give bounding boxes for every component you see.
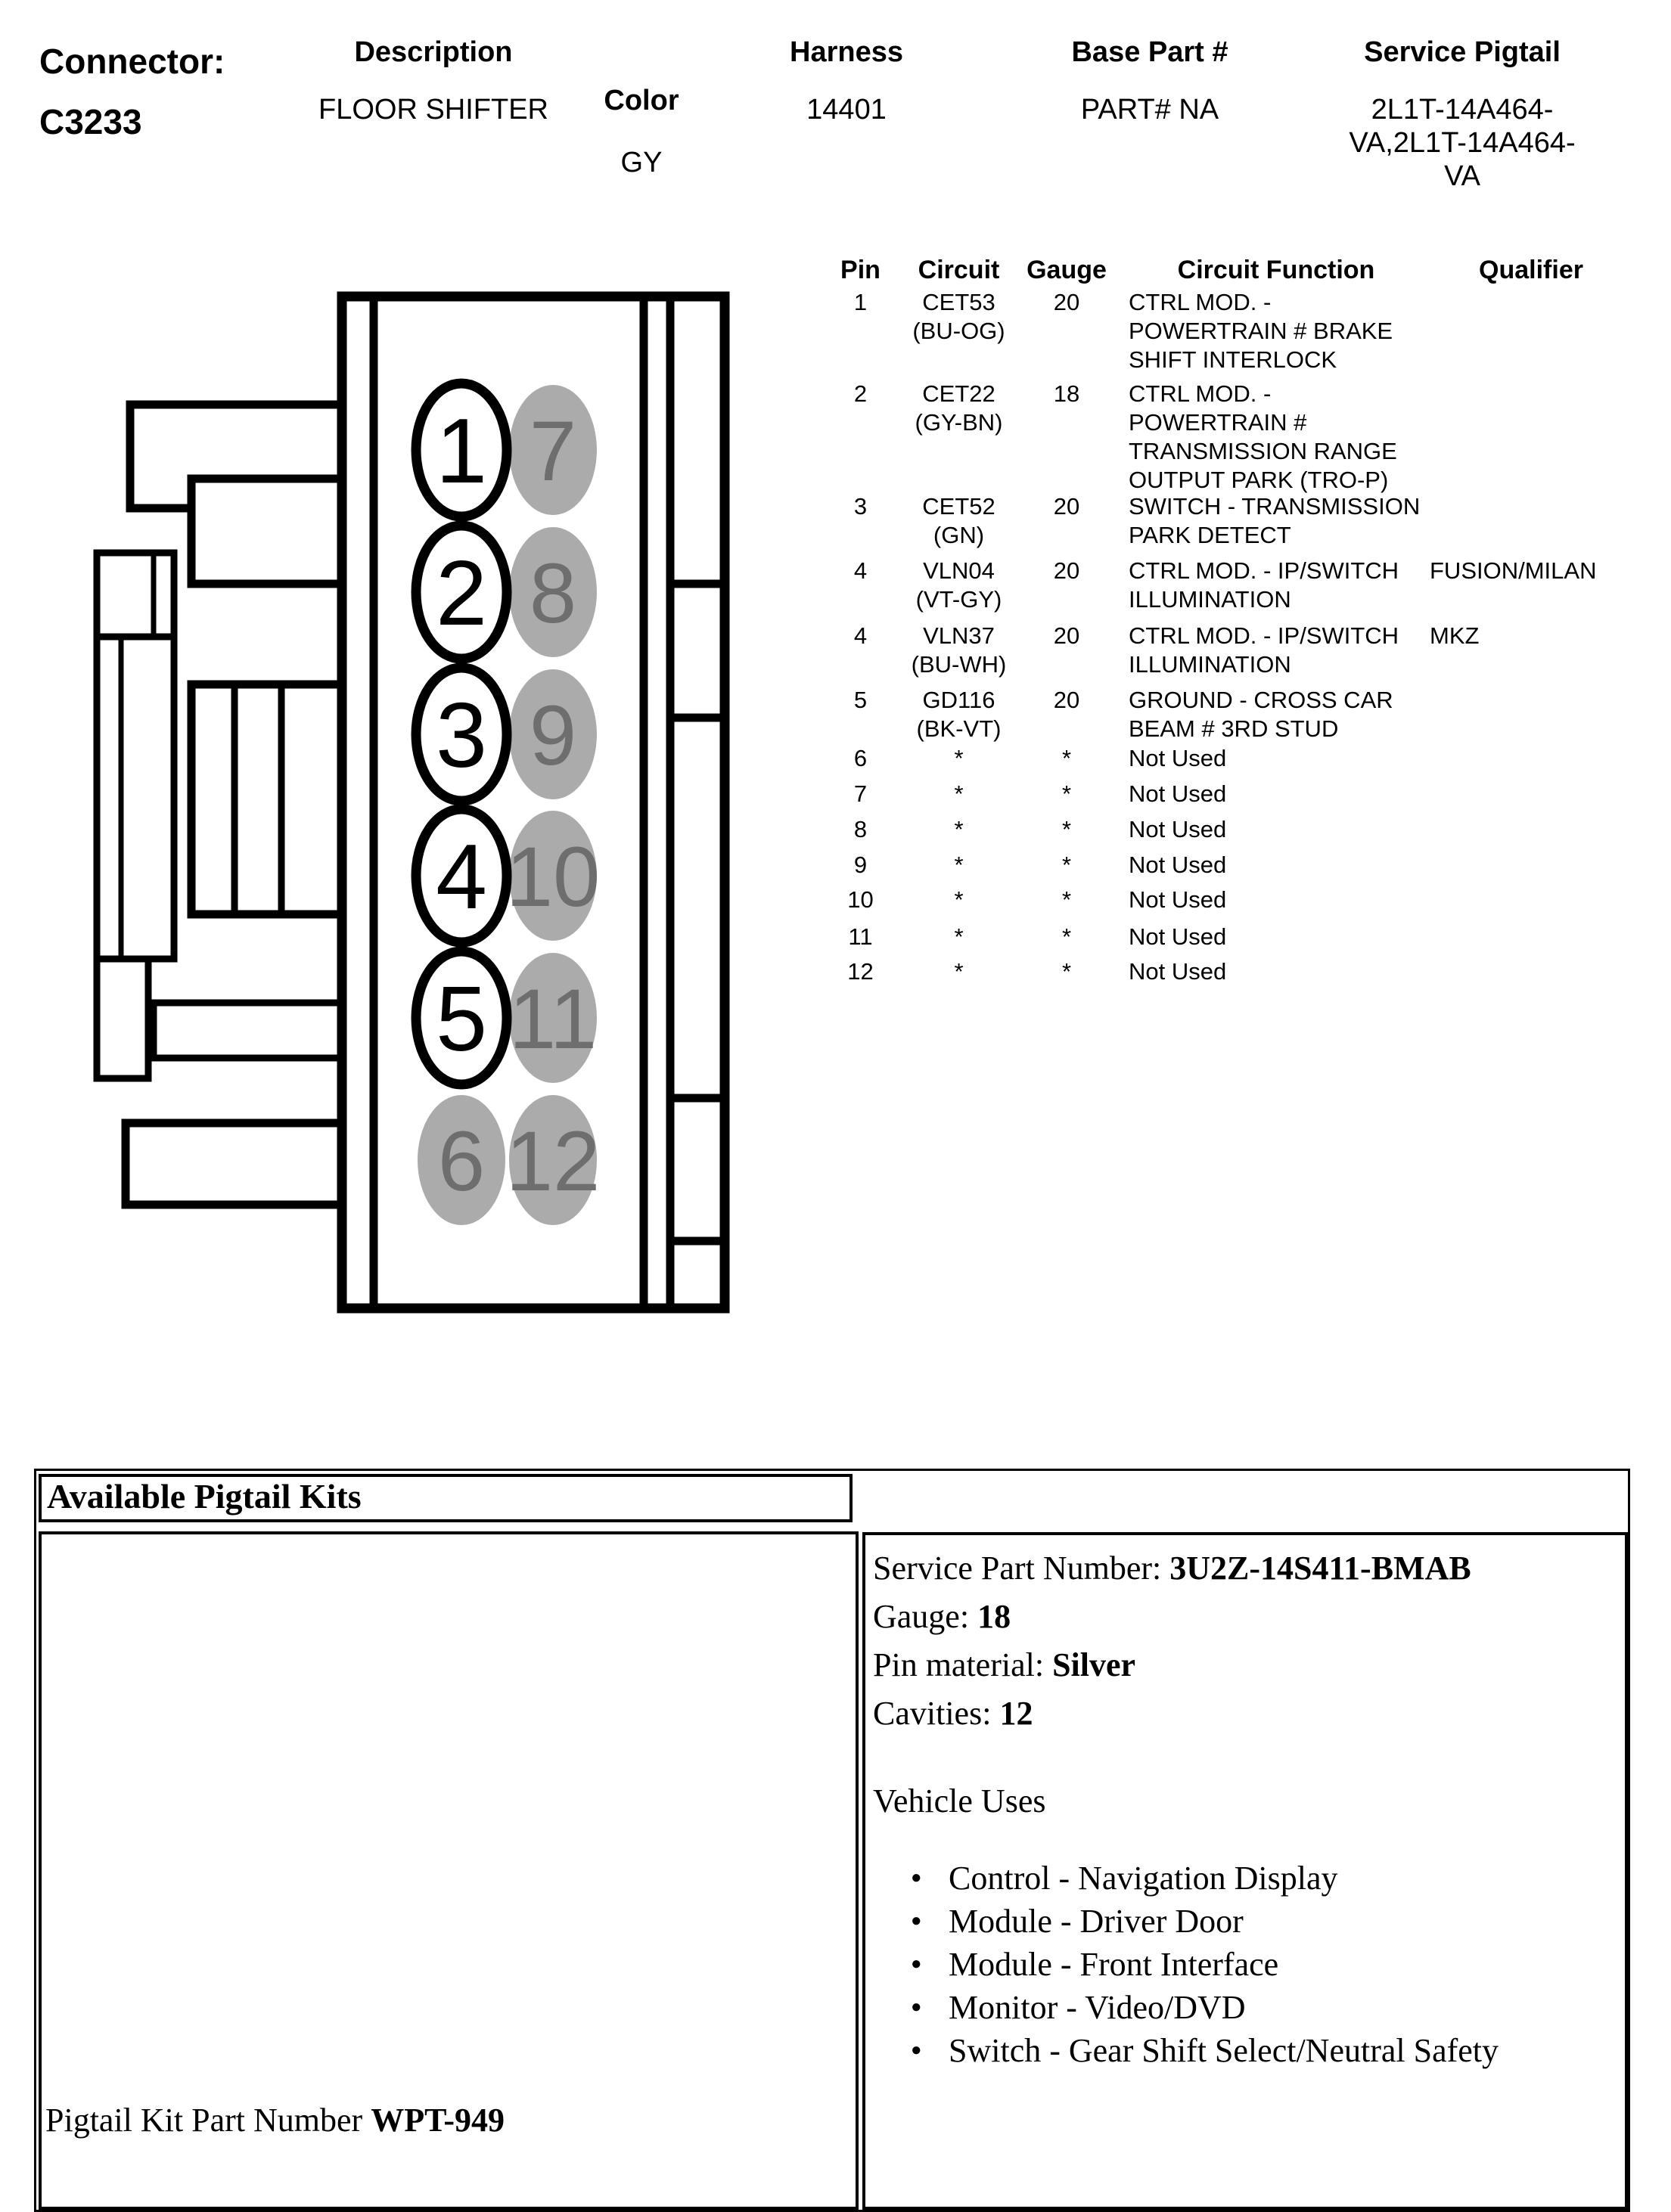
pin-cell: 11 (817, 923, 904, 951)
vehicle-use-item: ●Module - Front Interface (911, 1945, 1278, 1984)
circuit-cell: VLN04(VT-GY) (904, 557, 1014, 614)
connector-id: C3233 (39, 101, 142, 142)
vehicle-use-item: ●Module - Driver Door (911, 1902, 1244, 1941)
function-cell: Not Used (1129, 957, 1424, 986)
kit-value: WPT-949 (371, 2102, 505, 2139)
gauge-cell: 18 (1014, 380, 1120, 408)
circuit-cell: * (904, 923, 1014, 951)
gauge-cell: * (1014, 780, 1120, 808)
pin-4-number: 4 (436, 825, 487, 928)
function-cell: SWITCH - TRANSMISSIONPARK DETECT (1129, 492, 1424, 550)
latch-nub (97, 553, 174, 637)
pin-cell: 10 (817, 886, 904, 914)
latch-tab-h (126, 1123, 346, 1205)
service-pigtail-value-line2: VA,2L1T-14A464- (1349, 127, 1575, 160)
service-pigtail-value-line3: VA (1444, 160, 1480, 193)
circuit-cell: * (904, 851, 1014, 880)
harness-label: Harness (790, 36, 903, 69)
color-label: Color (604, 85, 679, 117)
gauge-value: 18 (977, 1598, 1011, 1635)
circuit-cell: * (904, 815, 1014, 844)
pin-11-number: 11 (509, 972, 597, 1066)
pin-material-line: Pin material: Silver (873, 1646, 1135, 1684)
circuit-cell: * (904, 780, 1014, 808)
pin-6-number: 6 (438, 1114, 485, 1208)
color-value: GY (621, 147, 663, 179)
latch-tab-f (154, 1003, 346, 1058)
gauge-cell: 20 (1014, 288, 1120, 317)
pin-5-number: 5 (436, 967, 487, 1070)
qualifier-cell: FUSION/MILAN (1430, 557, 1632, 585)
function-cell: Not Used (1129, 744, 1424, 773)
circuit-cell: * (904, 744, 1014, 773)
latch-grid (191, 684, 344, 914)
gauge-label: Gauge: (873, 1598, 977, 1635)
service-part-value: 3U2Z-14S411-BMAB (1169, 1550, 1471, 1587)
gauge-cell: * (1014, 744, 1120, 773)
base-part-label: Base Part # (1071, 36, 1228, 69)
function-cell: Not Used (1129, 886, 1424, 914)
function-cell: CTRL MOD. -POWERTRAIN #TRANSMISSION RANG… (1129, 380, 1424, 495)
bullet-icon: ● (911, 1868, 949, 1888)
service-pigtail-value-line1: 2L1T-14A464- (1371, 94, 1554, 126)
cavities-line: Cavities: 12 (873, 1694, 1033, 1733)
description-label: Description (354, 36, 512, 69)
pigtail-section-title: Available Pigtail Kits (47, 1476, 362, 1516)
connector-diagram: 1 2 3 4 5 6 7 8 9 10 11 12 (72, 276, 768, 1335)
pin-1-number: 1 (436, 399, 487, 502)
col-header-function: Circuit Function (1129, 256, 1424, 284)
pin-cell: 2 (817, 380, 904, 408)
gauge-cell: 20 (1014, 557, 1120, 585)
pin-material-label: Pin material: (873, 1646, 1052, 1683)
connector-spec-page: Connector: C3233 Description FLOOR SHIFT… (0, 0, 1671, 2212)
pin-7-number: 7 (530, 404, 576, 498)
gauge-line: Gauge: 18 (873, 1597, 1011, 1636)
pin-3-number: 3 (436, 684, 487, 786)
pin-cell: 4 (817, 557, 904, 585)
connector-label: Connector: (39, 41, 225, 82)
vehicle-use-item: ●Control - Navigation Display (911, 1859, 1338, 1897)
circuit-cell: GD116(BK-VT) (904, 686, 1014, 743)
vehicle-uses-heading: Vehicle Uses (873, 1782, 1046, 1820)
function-cell: Not Used (1129, 851, 1424, 880)
pin-cell: 1 (817, 288, 904, 317)
function-cell: Not Used (1129, 923, 1424, 951)
col-header-pin: Pin (817, 256, 904, 284)
pin-12-number: 12 (506, 1114, 601, 1208)
gauge-cell: 20 (1014, 492, 1120, 521)
gauge-cell: * (1014, 851, 1120, 880)
description-value: FLOOR SHIFTER (318, 94, 548, 126)
col-header-gauge: Gauge (1014, 256, 1120, 284)
circuit-cell: VLN37(BU-WH) (904, 622, 1014, 679)
kit-label: Pigtail Kit Part Number (45, 2102, 371, 2139)
pin-material-value: Silver (1052, 1646, 1135, 1683)
cavities-label: Cavities: (873, 1695, 999, 1732)
circuit-cell: CET52(GN) (904, 492, 1014, 550)
bullet-icon: ● (911, 1954, 949, 1975)
pin-cell: 4 (817, 622, 904, 650)
pin-cell: 8 (817, 815, 904, 844)
bullet-icon: ● (911, 2040, 949, 2061)
service-part-label: Service Part Number: (873, 1550, 1169, 1587)
gauge-cell: * (1014, 815, 1120, 844)
pin-cell: 12 (817, 957, 904, 986)
function-cell: CTRL MOD. - IP/SWITCHILLUMINATION (1129, 622, 1424, 679)
col-header-circuit: Circuit (904, 256, 1014, 284)
function-cell: CTRL MOD. -POWERTRAIN # BRAKESHIFT INTER… (1129, 288, 1424, 374)
pin-cell: 7 (817, 780, 904, 808)
base-part-value: PART# NA (1081, 94, 1219, 126)
gauge-cell: 20 (1014, 686, 1120, 715)
circuit-cell: * (904, 957, 1014, 986)
function-cell: GROUND - CROSS CARBEAM # 3RD STUD (1129, 686, 1424, 743)
pin-cell: 3 (817, 492, 904, 521)
vehicle-use-item: ●Switch - Gear Shift Select/Neutral Safe… (911, 2031, 1499, 2070)
vehicle-use-item: ●Monitor - Video/DVD (911, 1988, 1246, 2027)
function-cell: Not Used (1129, 815, 1424, 844)
pin-8-number: 8 (530, 546, 576, 641)
service-part-number-line: Service Part Number: 3U2Z-14S411-BMAB (873, 1549, 1471, 1587)
latch-rail (97, 637, 174, 959)
bullet-icon: ● (911, 1911, 949, 1931)
circuit-cell: CET22(GY-BN) (904, 380, 1014, 437)
col-header-qualifier: Qualifier (1430, 256, 1632, 284)
gauge-cell: * (1014, 923, 1120, 951)
function-cell: Not Used (1129, 780, 1424, 808)
gauge-cell: 20 (1014, 622, 1120, 650)
bullet-icon: ● (911, 1997, 949, 2018)
gauge-cell: * (1014, 957, 1120, 986)
circuit-cell: CET53(BU-OG) (904, 288, 1014, 346)
gauge-cell: * (1014, 886, 1120, 914)
pin-cell: 5 (817, 686, 904, 715)
pigtail-kit-part-number-line: Pigtail Kit Part Number WPT-949 (45, 2101, 505, 2139)
pin-10-number: 10 (506, 830, 601, 924)
pin-2-number: 2 (436, 541, 487, 644)
service-pigtail-label: Service Pigtail (1364, 36, 1561, 69)
circuit-cell: * (904, 886, 1014, 914)
qualifier-cell: MKZ (1430, 622, 1632, 650)
harness-value: 14401 (806, 94, 887, 126)
pin-cell: 9 (817, 851, 904, 880)
latch-rail-lower (97, 959, 148, 1078)
function-cell: CTRL MOD. - IP/SWITCHILLUMINATION (1129, 557, 1424, 614)
pin-cell: 6 (817, 744, 904, 773)
pin-9-number: 9 (530, 688, 576, 783)
cavities-value: 12 (999, 1695, 1033, 1732)
